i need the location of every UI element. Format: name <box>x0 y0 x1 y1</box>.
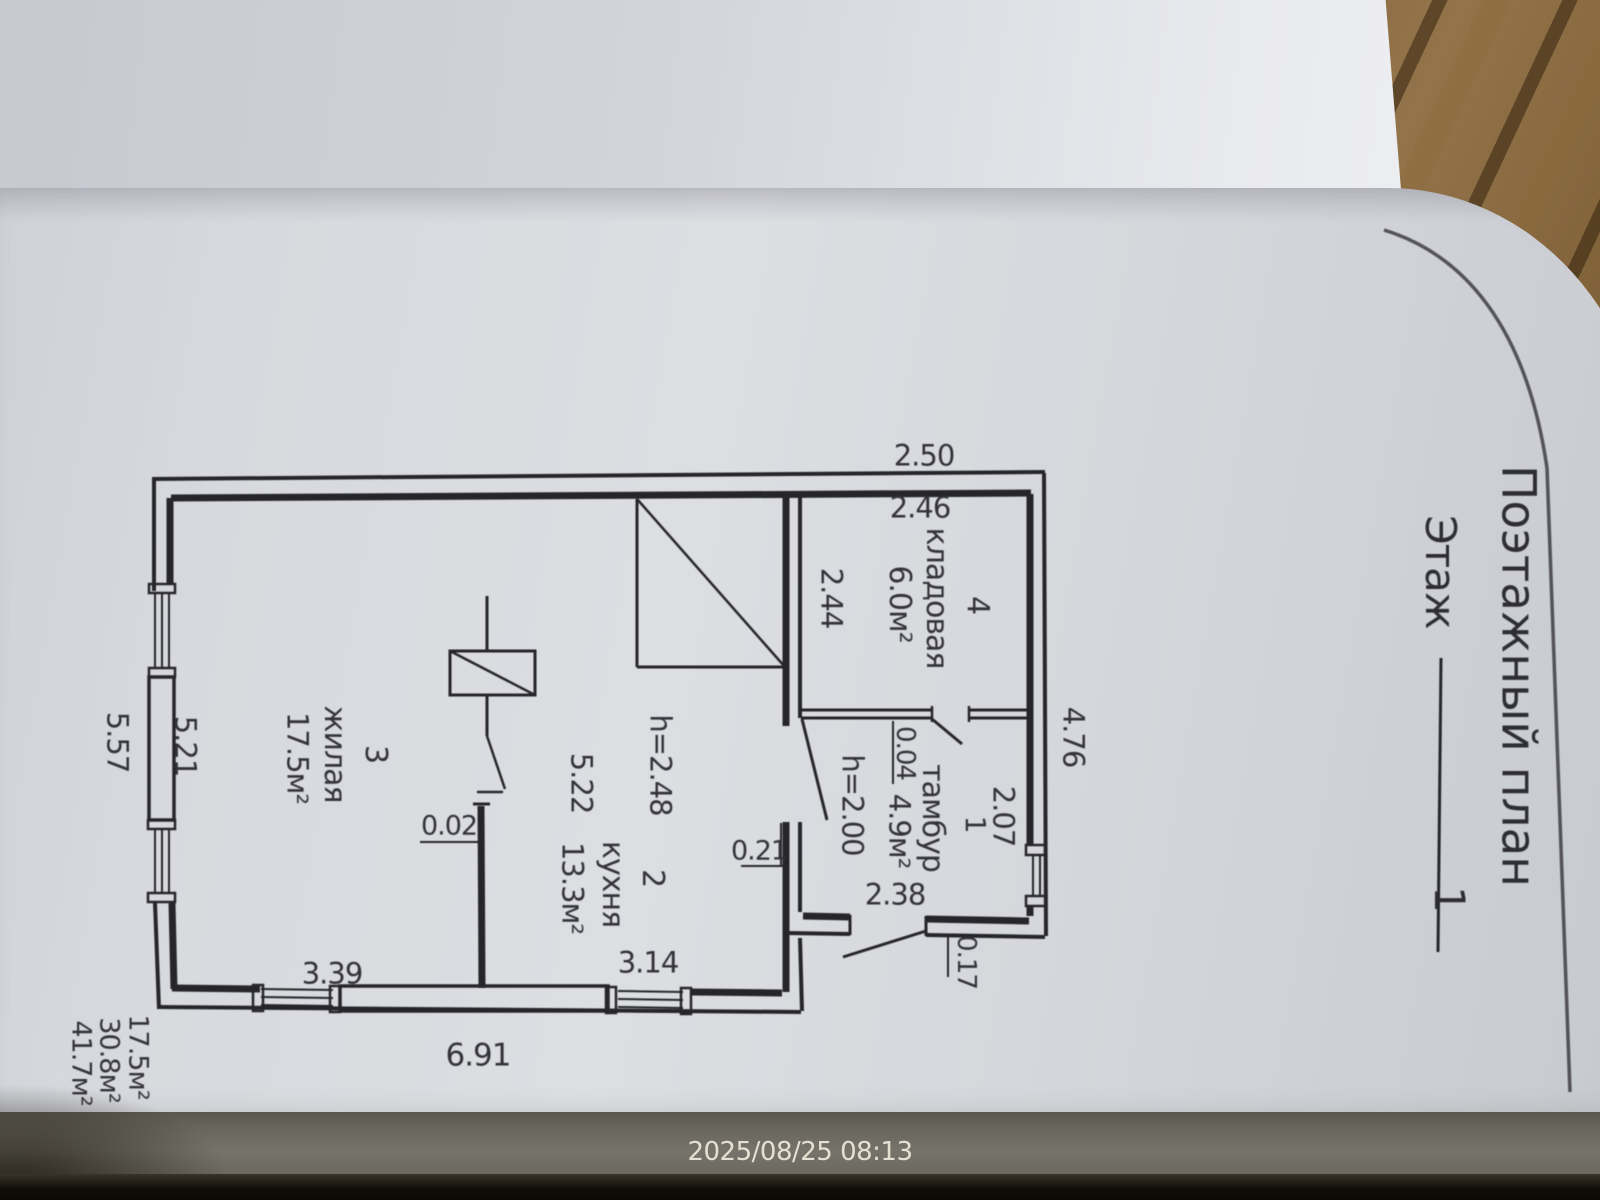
room-living-number: 3 <box>360 745 390 763</box>
dim-kitchen-width: 3.14 <box>618 949 679 978</box>
dim-house-side-outer: 5.57 <box>103 712 132 773</box>
floor-plan: 2.50 2.46 2.38 0.21 0.02 3.39 3.14 6.91 … <box>0 0 1600 1200</box>
dim-tambur-width: 2.07 <box>989 786 1018 847</box>
photo-bottom-shadow <box>0 1174 1600 1200</box>
page-title: Поэтажный план <box>1495 465 1542 887</box>
room-tambur-height: h=2.00 <box>838 754 867 855</box>
dim-house-front-outer: 6.91 <box>445 1041 510 1072</box>
floor-plan-drawing <box>0 0 1600 1200</box>
dim-kladovaya-depth: 2.44 <box>817 568 846 629</box>
room-kladovaya-name: кладовая <box>921 528 951 669</box>
camera-timestamp: 2025/08/25 08:13 <box>687 1137 912 1167</box>
stair-symbol <box>637 499 785 667</box>
dim-house-side-inner: 5.21 <box>171 716 200 777</box>
floor-number: 1 <box>1428 886 1470 912</box>
room-kitchen-area: 13.3м² <box>558 842 587 934</box>
room-living-name: жилая <box>319 705 349 802</box>
dim-wall-thickness: 0.21 <box>731 838 787 865</box>
dim-partition-thickness: 0.02 <box>421 813 477 840</box>
room-kitchen-number: 2 <box>637 869 667 887</box>
room-kitchen-name: кухня <box>597 841 627 927</box>
floor-label: Этаж <box>1419 515 1461 628</box>
room-tambur-area: 4.9м² <box>885 794 914 869</box>
dim-living-width: 3.39 <box>302 960 363 989</box>
room-tambur-number: 1 <box>961 816 989 833</box>
dim-ext-top-width: 2.50 <box>894 442 955 471</box>
photograph-of-floor-plan: 2.50 2.46 2.38 0.21 0.02 3.39 3.14 6.91 … <box>0 0 1600 1200</box>
dim-porch-step: 0.17 <box>953 935 979 989</box>
dim-kitchen-depth: 5.22 <box>567 753 596 814</box>
dim-tambur-depth: 2.38 <box>865 881 926 910</box>
dim-kladovaya-width: 2.46 <box>890 494 951 523</box>
stove-symbol <box>450 596 535 792</box>
room-living-area: 17.5м² <box>283 712 312 804</box>
room-kladovaya-area: 6.0м² <box>884 565 914 642</box>
room-tambur-name: тамбур <box>917 764 947 872</box>
room-kitchen-height: h=2.48 <box>646 714 675 815</box>
room-kladovaya-number: 4 <box>962 596 992 614</box>
dim-ext-right-depth: 4.76 <box>1059 707 1088 768</box>
